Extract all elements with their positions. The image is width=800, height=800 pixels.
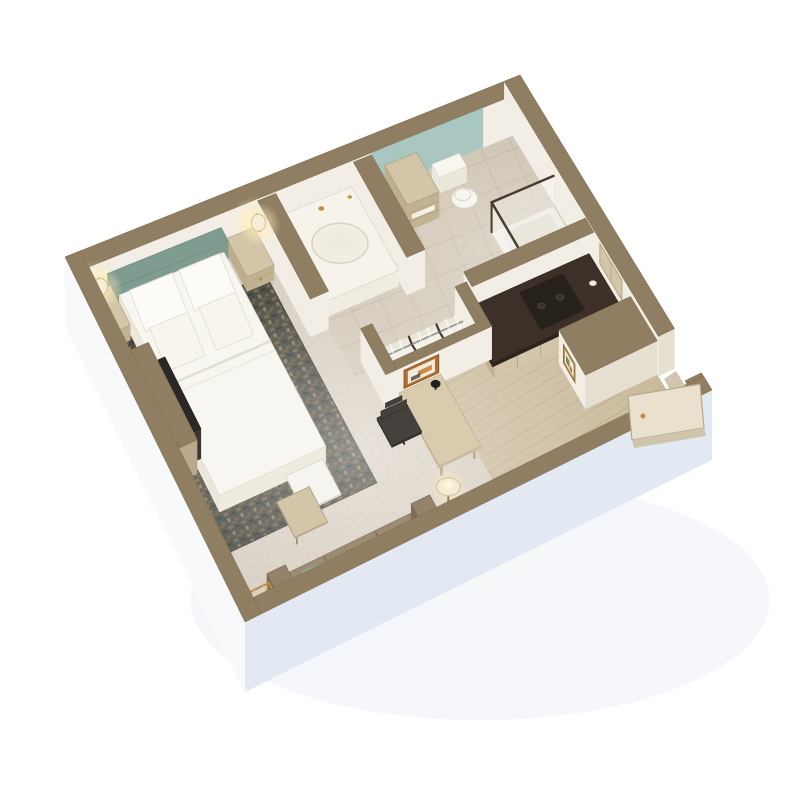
wall-southwest-face-front (245, 614, 261, 692)
kitchen-kettle (589, 281, 596, 286)
floorplan-canvas (0, 0, 800, 800)
kitchen-burner-2 (538, 303, 546, 309)
floorplan-stage (0, 0, 800, 800)
kitchen-burner-1 (556, 295, 564, 301)
bathtub-candle (348, 195, 352, 199)
sconce-lamp-right-shade (252, 214, 266, 231)
floor-lamp-shade-top (443, 481, 453, 488)
bathtub-basin-inner (321, 231, 359, 255)
desk-lamp-head (431, 380, 441, 388)
bathtub-faucet (318, 206, 324, 210)
nightstand-right-knob (259, 278, 262, 281)
entry-door-handle (641, 414, 646, 419)
wall-northeast-a-face-front (658, 329, 674, 377)
